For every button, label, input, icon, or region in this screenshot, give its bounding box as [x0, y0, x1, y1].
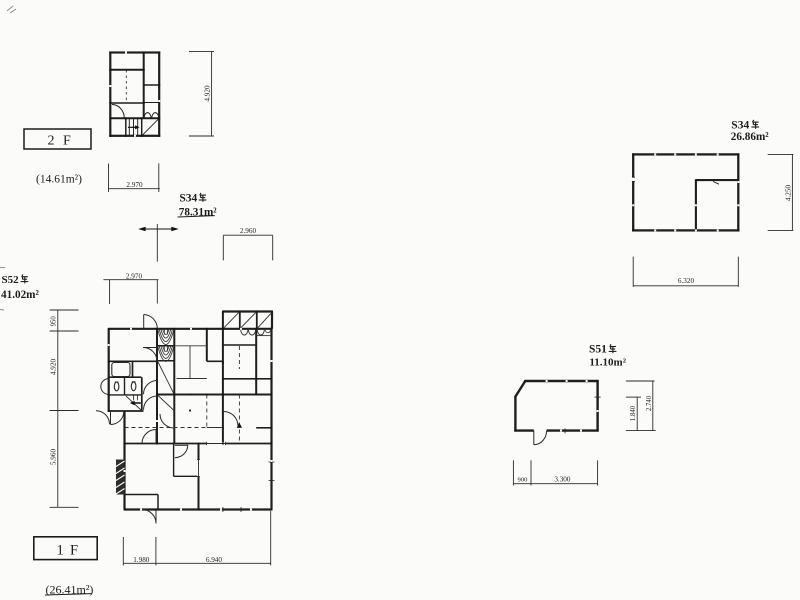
svg-text:F: F — [63, 134, 71, 149]
svg-text:S34: S34 — [179, 192, 197, 204]
svg-text:900: 900 — [518, 476, 529, 483]
svg-text:2.740: 2.740 — [646, 395, 653, 411]
svg-text:6.320: 6.320 — [678, 277, 695, 285]
svg-text:41.02m²: 41.02m² — [1, 289, 39, 301]
svg-text:26.86m²: 26.86m² — [731, 131, 769, 143]
svg-text:6.940: 6.940 — [206, 556, 223, 564]
svg-text:950: 950 — [50, 316, 57, 327]
svg-text:S51: S51 — [589, 344, 607, 356]
svg-text:2.960: 2.960 — [240, 227, 257, 235]
svg-text:F: F — [70, 543, 78, 559]
svg-text:1.840: 1.840 — [630, 405, 637, 421]
svg-text:4.920: 4.920 — [50, 359, 58, 376]
svg-text:11.10m²: 11.10m² — [589, 356, 626, 368]
svg-text:4.920: 4.920 — [203, 85, 211, 102]
svg-text:2.970: 2.970 — [126, 272, 143, 280]
svg-text:1.980: 1.980 — [133, 556, 150, 564]
svg-text:5.960: 5.960 — [50, 449, 58, 466]
svg-text:(14.61m²): (14.61m²) — [36, 174, 82, 186]
svg-text:3.300: 3.300 — [554, 475, 571, 483]
svg-text:S34: S34 — [731, 119, 749, 131]
svg-text:4.250: 4.250 — [784, 185, 792, 202]
svg-text:2.970: 2.970 — [126, 181, 143, 189]
svg-text:2: 2 — [48, 134, 55, 149]
svg-text:S52: S52 — [2, 274, 20, 286]
svg-text:1: 1 — [57, 543, 64, 559]
